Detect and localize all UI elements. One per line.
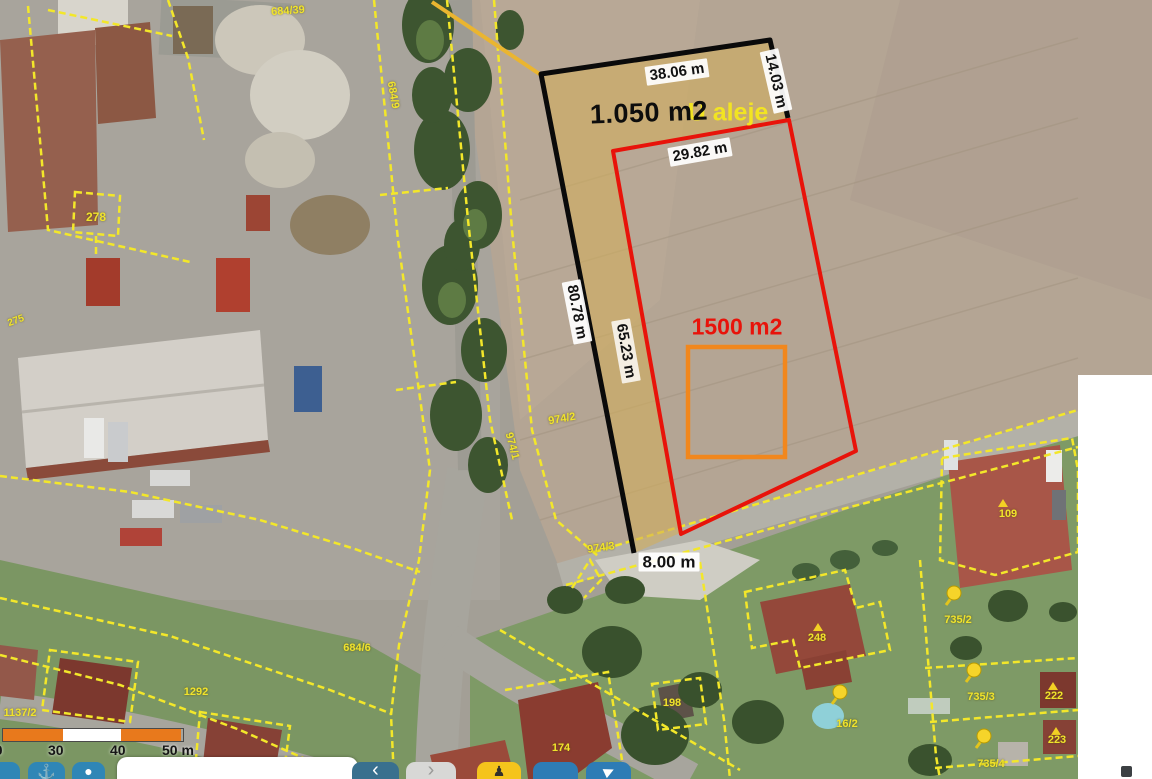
scale-tick: 20 xyxy=(0,742,3,758)
share-icon: ▶ xyxy=(601,762,617,779)
back-button[interactable]: ‹ xyxy=(352,762,399,779)
parcel-label: 222 xyxy=(1045,690,1063,702)
forward-arrow-icon: › xyxy=(428,763,435,777)
parcel-label: 278 xyxy=(86,210,106,224)
tools-button[interactable] xyxy=(533,762,578,779)
scale-tick: 50 m xyxy=(162,742,194,758)
scale-segment xyxy=(121,729,181,741)
locate-button[interactable]: ⚓ xyxy=(28,762,65,779)
layers-button[interactable] xyxy=(0,762,20,779)
parcel-label: 16/2 xyxy=(836,718,857,730)
parcel-label: 684/6 xyxy=(343,642,371,654)
parcel-label: 1292 xyxy=(184,686,208,698)
measurement-label-bottom: 8.00 m xyxy=(639,553,700,572)
parcel-label: 198 xyxy=(663,697,681,709)
parcel-label: 684/39 xyxy=(271,4,305,18)
parcel-label: 109 xyxy=(999,508,1017,520)
parcel-label: 735/2 xyxy=(944,614,972,626)
account-button[interactable]: ● xyxy=(72,762,105,779)
black-plot-area-label: 1.050 m2 xyxy=(589,95,708,130)
unloaded-map-tile xyxy=(1078,375,1152,779)
parcel-label: 735/3 xyxy=(967,691,995,703)
forward-button[interactable]: › xyxy=(406,762,456,779)
parcel-label: 735/4 xyxy=(977,758,1005,770)
user-icon: ● xyxy=(84,763,92,779)
search-input[interactable] xyxy=(117,757,358,779)
panorama-button[interactable]: ♟ xyxy=(477,762,521,779)
share-button[interactable]: ▶ xyxy=(586,762,631,779)
back-arrow-icon: ‹ xyxy=(372,763,379,777)
partial-icon xyxy=(1121,766,1132,777)
parcel-label: 248 xyxy=(808,632,826,644)
scale-tick: 40 xyxy=(110,742,126,758)
anchor-icon: ⚓ xyxy=(37,763,56,779)
parcel-label: 1137/2 xyxy=(3,707,36,719)
parcel-label: 174 xyxy=(552,742,570,754)
pegman-icon: ♟ xyxy=(493,763,506,779)
red-plot-area-label: 1500 m2 xyxy=(692,314,783,341)
map-canvas[interactable] xyxy=(0,0,1152,779)
scale-segment xyxy=(63,729,121,741)
scale-segment xyxy=(3,729,63,741)
map-viewport: 38.06 m 14.03 m 29.82 m 80.78 m 65.23 m … xyxy=(0,0,1152,779)
parcel-label: 223 xyxy=(1048,734,1066,746)
map-scale-bar xyxy=(2,728,184,742)
scale-tick: 30 xyxy=(48,742,64,758)
